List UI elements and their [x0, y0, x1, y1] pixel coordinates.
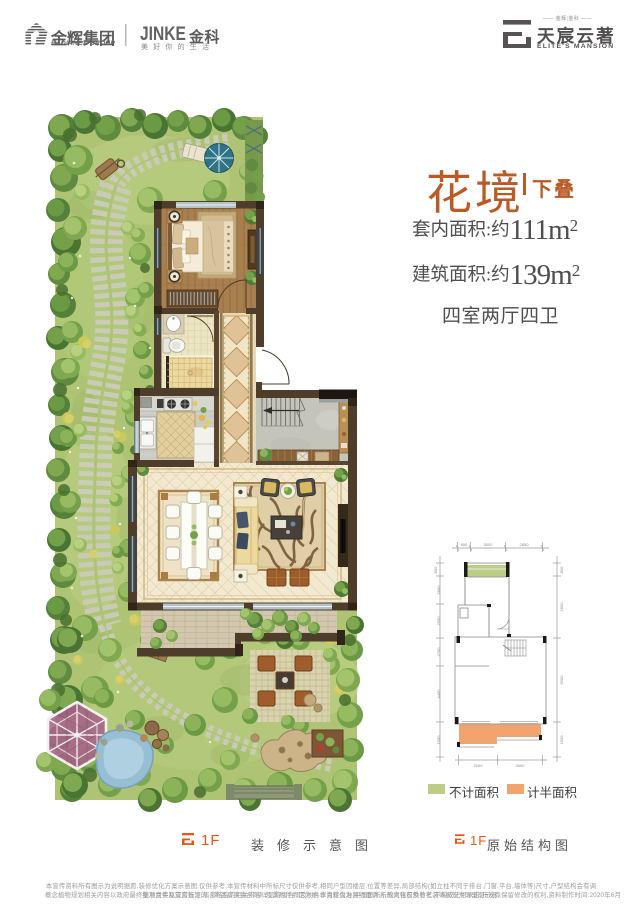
svg-text:2500: 2500	[436, 616, 441, 626]
svg-text:3600: 3600	[516, 763, 526, 768]
svg-text:3000: 3000	[484, 542, 494, 547]
svg-text:800: 800	[559, 566, 564, 573]
svg-text:800: 800	[433, 566, 438, 573]
svg-text:1500: 1500	[436, 735, 441, 745]
svg-text:2700: 2700	[436, 647, 441, 657]
svg-text:2800: 2800	[436, 585, 441, 595]
svg-text:1500: 1500	[559, 735, 564, 745]
svg-text:2100: 2100	[474, 763, 484, 768]
svg-text:2850: 2850	[520, 542, 530, 547]
svg-text:2600: 2600	[559, 602, 564, 612]
svg-text:6200: 6200	[559, 675, 564, 685]
svg-text:850: 850	[461, 542, 468, 547]
svg-text:4400: 4400	[436, 689, 441, 699]
